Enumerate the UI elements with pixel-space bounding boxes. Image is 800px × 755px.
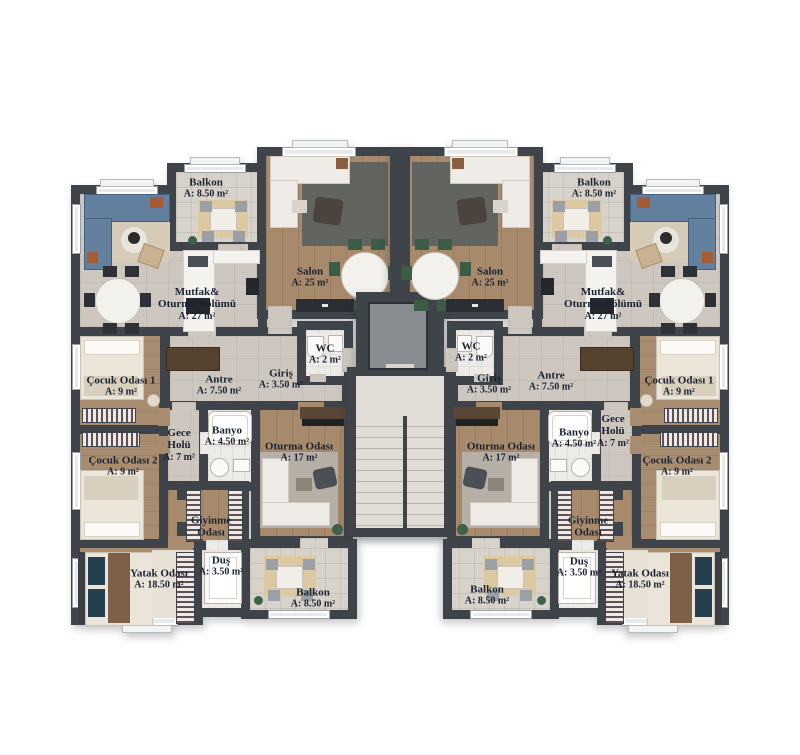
label-dus-left: DuşA: 3.50 m² <box>199 554 243 578</box>
label-cocuk1-left: Çocuk Odası 1A: 9 m² <box>86 374 155 398</box>
label-balkon-bottom-left: BalkonA: 8.50 m² <box>291 586 335 610</box>
label-cocuk2-right: Çocuk Odası 2A: 9 m² <box>642 454 711 478</box>
label-wc-left: WCA: 2 m² <box>309 342 341 366</box>
label-cocuk2-left: Çocuk Odası 2A: 9 m² <box>88 454 157 478</box>
label-balkon-bottom-right: BalkonA: 8.50 m² <box>465 583 509 607</box>
label-balkon-top-right: BalkonA: 8.50 m² <box>572 176 616 200</box>
label-giyinme-left: GiyinmeOdası <box>191 515 231 540</box>
label-banyo-right: BanyoA: 4.50 m² <box>552 426 596 450</box>
label-mutfak-left: Mutfak&Oturma BölümüA: 27 m² <box>158 286 236 322</box>
label-wc-right: WCA: 2 m² <box>455 340 487 364</box>
label-oturma-right: Oturma OdasıA: 17 m² <box>467 440 535 464</box>
label-antre-right: AntreA: 7.50 m² <box>529 369 573 393</box>
label-gece-holu-right: GeceHolüA: 7 m² <box>597 413 629 449</box>
label-giyinme-right: GiyinmeOdası <box>568 515 608 540</box>
label-giris-left: GirişA: 3.50 m² <box>259 367 303 391</box>
label-salon-right: SalonA: 25 m² <box>472 265 509 289</box>
label-oturma-left: Oturma OdasıA: 17 m² <box>265 440 333 464</box>
label-giris-right: GirişA: 3.50 m² <box>467 372 511 396</box>
label-mutfak-right: Mutfak&Oturma BölümüA: 27 m² <box>564 286 642 322</box>
label-gece-holu-left: GeceHolüA: 7 m² <box>163 427 195 463</box>
label-salon-left: SalonA: 25 m² <box>292 265 329 289</box>
label-yatak-right: Yatak OdasıA: 18.50 m² <box>611 567 669 591</box>
label-antre-left: AntreA: 7.50 m² <box>197 373 241 397</box>
label-cocuk1-right: Çocuk Odası 1A: 9 m² <box>644 374 713 398</box>
label-dus-right: DuşA: 3.50 m² <box>557 555 601 579</box>
floor-plan-canvas: BalkonA: 8.50 m² Mutfak&Oturma BölümüA: … <box>0 0 800 755</box>
label-balkon-top-left: BalkonA: 8.50 m² <box>184 176 228 200</box>
room-labels: BalkonA: 8.50 m² Mutfak&Oturma BölümüA: … <box>0 0 800 755</box>
label-yatak-left: Yatak OdasıA: 18.50 m² <box>130 567 188 591</box>
label-banyo-left: BanyoA: 4.50 m² <box>205 424 249 448</box>
